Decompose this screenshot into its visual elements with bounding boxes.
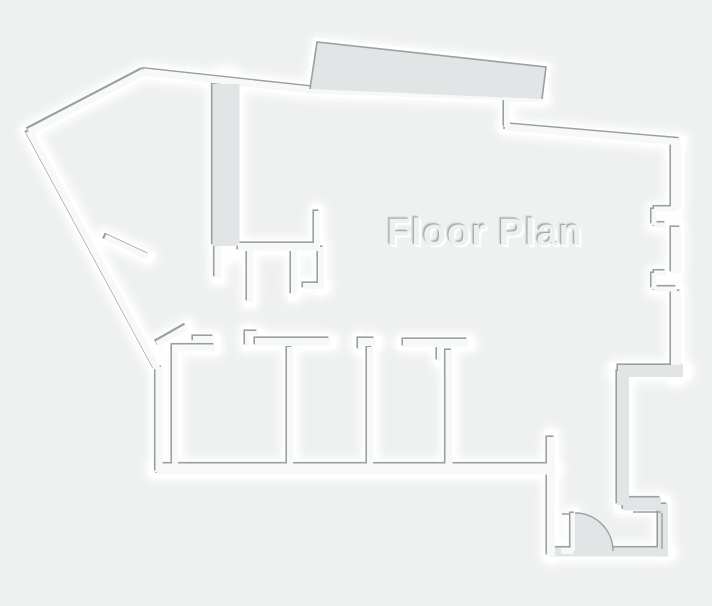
floor-plan-title: Floor Plan: [387, 212, 583, 255]
floor-plan-page: Floor Plan: [0, 0, 712, 606]
wall-fill-layer: [29, 72, 683, 556]
wall-glow-layer: [29, 42, 683, 556]
floor-plan-drawing: [0, 0, 712, 606]
door-swing: [575, 513, 613, 551]
